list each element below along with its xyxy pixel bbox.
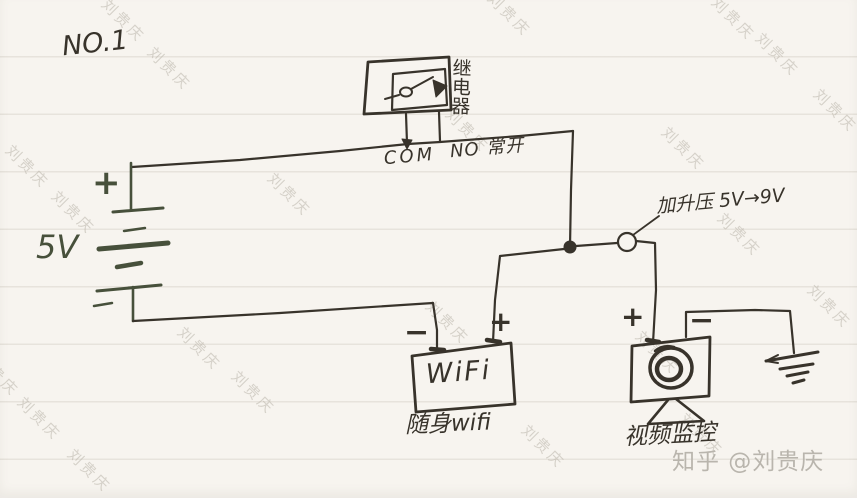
ground-symbol (766, 352, 818, 383)
camera-lens-inner (657, 358, 681, 380)
wifi-device-text: WiFi (425, 357, 492, 388)
hand-drawn-circuit-sketch: 刘贵庆刘贵庆刘贵庆刘贵庆刘贵庆刘贵庆刘贵庆刘贵庆刘贵庆刘贵庆刘贵庆刘贵庆刘贵庆刘… (0, 0, 857, 498)
relay-com-pin (406, 114, 407, 143)
wifi-caption: 随身wifi (405, 412, 492, 438)
wire-no-drop (570, 131, 573, 247)
zhihu-credit: 知乎 @刘贵庆 (672, 451, 824, 474)
relay-com-label: COM (383, 146, 436, 168)
boost-leader-line (633, 216, 659, 235)
camera-plus-sign: + (621, 303, 644, 331)
camera-caption: 视频监控 (623, 422, 716, 450)
relay-label: 继电器 (448, 58, 470, 116)
battery-voltage-label: 5V (36, 231, 78, 263)
relay-symbol (364, 57, 451, 149)
battery-minus-dash (94, 303, 112, 306)
wifi-minus-sign: − (404, 318, 429, 348)
note-number: NO.1 (61, 27, 130, 61)
camera-symbol (631, 337, 710, 424)
relay-no-pin (439, 112, 440, 141)
junction-dot (564, 241, 577, 254)
relay-lever (411, 77, 433, 89)
wire-junction-to-camera-plus (576, 216, 659, 343)
wifi-plus-sign: + (489, 308, 512, 336)
battery-plus-sign: + (92, 166, 121, 200)
wire-battery-minus-to-wifi (133, 303, 444, 351)
camera-minus-sign: − (689, 306, 714, 336)
